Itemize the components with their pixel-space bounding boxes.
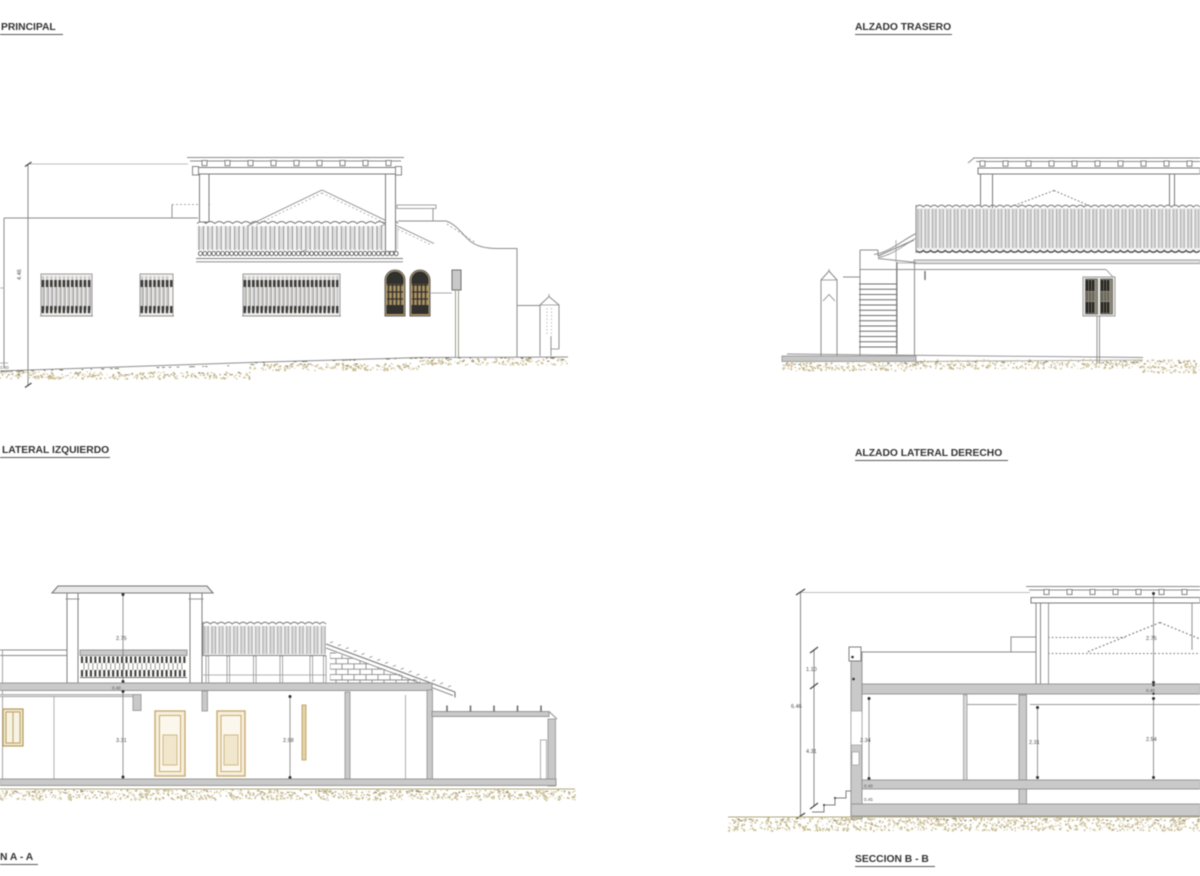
svg-text:0.45: 0.45 — [864, 797, 873, 802]
svg-text:0.40: 0.40 — [112, 686, 121, 691]
svg-text:3.31: 3.31 — [116, 738, 127, 744]
svg-text:0.40: 0.40 — [864, 784, 873, 789]
svg-text:ALZADO TRASERO: ALZADO TRASERO — [855, 22, 951, 33]
svg-text:PRINCIPAL: PRINCIPAL — [1, 22, 56, 33]
svg-text:4.31: 4.31 — [806, 749, 817, 755]
svg-text:0.40: 0.40 — [1146, 688, 1155, 693]
svg-text:2.98: 2.98 — [283, 738, 294, 744]
svg-text:2.31: 2.31 — [1029, 740, 1040, 746]
svg-text:2.54: 2.54 — [1146, 737, 1157, 743]
svg-text:1.10: 1.10 — [806, 667, 817, 673]
svg-text:N A - A: N A - A — [0, 852, 34, 863]
svg-text:6.46: 6.46 — [791, 704, 802, 710]
svg-text:LATERAL IZQUIERDO: LATERAL IZQUIERDO — [2, 445, 109, 456]
svg-text:4.46: 4.46 — [17, 269, 23, 280]
svg-text:0.40: 0.40 — [0, 365, 9, 370]
svg-text:2.75: 2.75 — [1146, 636, 1157, 642]
svg-text:ALZADO LATERAL DERECHO: ALZADO LATERAL DERECHO — [855, 448, 1002, 459]
svg-text:2.75: 2.75 — [116, 636, 127, 642]
svg-text:2.34: 2.34 — [860, 738, 871, 744]
svg-text:SECCION B - B: SECCION B - B — [855, 854, 929, 865]
